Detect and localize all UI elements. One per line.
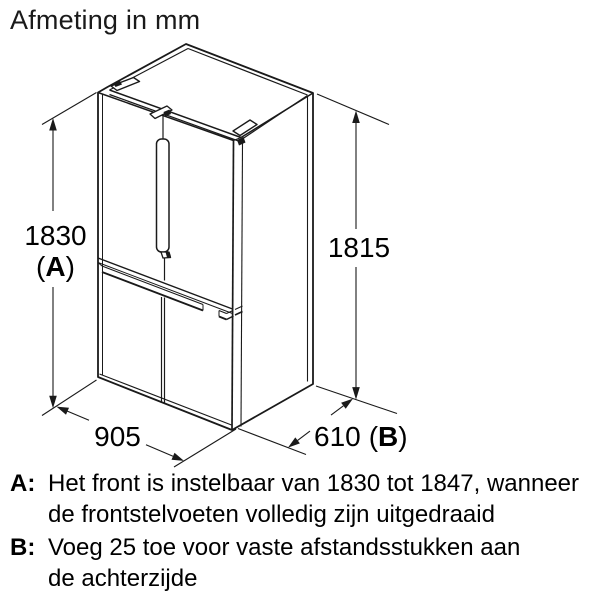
footnote-a-marker: A: xyxy=(10,469,48,530)
dimension-height-side: 1815 xyxy=(316,94,397,414)
dim-height-front-ref: (A) xyxy=(36,251,75,282)
dim-width-value: 905 xyxy=(94,421,141,452)
footnote-b-marker: B: xyxy=(10,533,48,594)
arrowhead xyxy=(352,387,360,400)
extension-line xyxy=(317,94,389,125)
dim-height-front-value: 1830 xyxy=(24,220,86,251)
dim-depth-value: 610(B) xyxy=(314,421,408,452)
door-handle xyxy=(157,139,172,258)
dimension-height-front: 1830 (A) xyxy=(24,93,96,416)
extension-line xyxy=(42,93,97,125)
page: Afmeting in mm xyxy=(0,0,600,600)
arrowhead xyxy=(341,399,353,409)
arrowhead xyxy=(57,407,70,415)
footnote-b-line2: de achterzijde xyxy=(48,564,592,595)
arrowhead xyxy=(352,111,360,124)
dim-height-side-value: 1815 xyxy=(328,232,390,263)
footnote-a-line1: Het front is instelbaar van 1830 tot 184… xyxy=(48,469,592,500)
footnote-b-line1: Voeg 25 toe voor vaste afstandsstukken a… xyxy=(48,533,592,564)
arrowhead xyxy=(288,437,300,447)
fridge-drawing xyxy=(98,44,313,430)
footnote-a-line2: de frontstelvoeten volledig zijn uitgedr… xyxy=(48,500,592,531)
footnote-b: B: Voeg 25 toe voor vaste afstandsstukke… xyxy=(10,533,592,594)
footnotes: A: Het front is instelbaar van 1830 tot … xyxy=(10,469,592,594)
footnote-a: A: Het front is instelbaar van 1830 tot … xyxy=(10,469,592,530)
extension-line xyxy=(174,429,236,467)
arrowhead xyxy=(172,453,185,461)
